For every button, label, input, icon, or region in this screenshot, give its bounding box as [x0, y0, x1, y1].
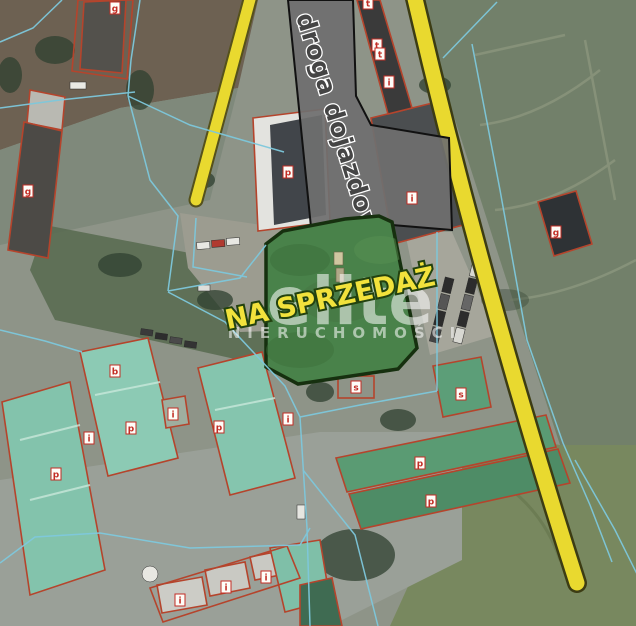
building-label-letter: g: [25, 188, 31, 198]
tank-structure: [142, 566, 158, 582]
building-label-letter: i: [178, 597, 181, 607]
building-label-letter: p: [53, 471, 60, 481]
building-label-letter: p: [417, 460, 424, 470]
building-label-letter: t: [378, 51, 383, 61]
building-label-letter: i: [286, 416, 289, 426]
building-label-letter: i: [87, 435, 90, 445]
building-label-letter: t: [366, 0, 371, 10]
building-label-letter: i: [224, 584, 227, 594]
building-label-letter: i: [264, 574, 267, 584]
building-label-letter: i: [387, 79, 390, 89]
aerial-map[interactable]: droga dojazdowa: [0, 0, 636, 626]
building-label-letter: p: [285, 169, 292, 179]
building-label-letter: b: [112, 368, 119, 378]
building-label-letter: s: [458, 391, 463, 401]
building-label-letter: s: [353, 384, 358, 394]
building-label-letter: p: [128, 425, 135, 435]
building-label-letter: i: [171, 411, 174, 421]
building-label-letter: g: [112, 5, 118, 15]
building-label-letter: p: [428, 498, 435, 508]
building-label-letter: p: [216, 424, 223, 434]
building-label-letter: g: [553, 229, 559, 239]
building-label-letter: i: [410, 195, 413, 205]
